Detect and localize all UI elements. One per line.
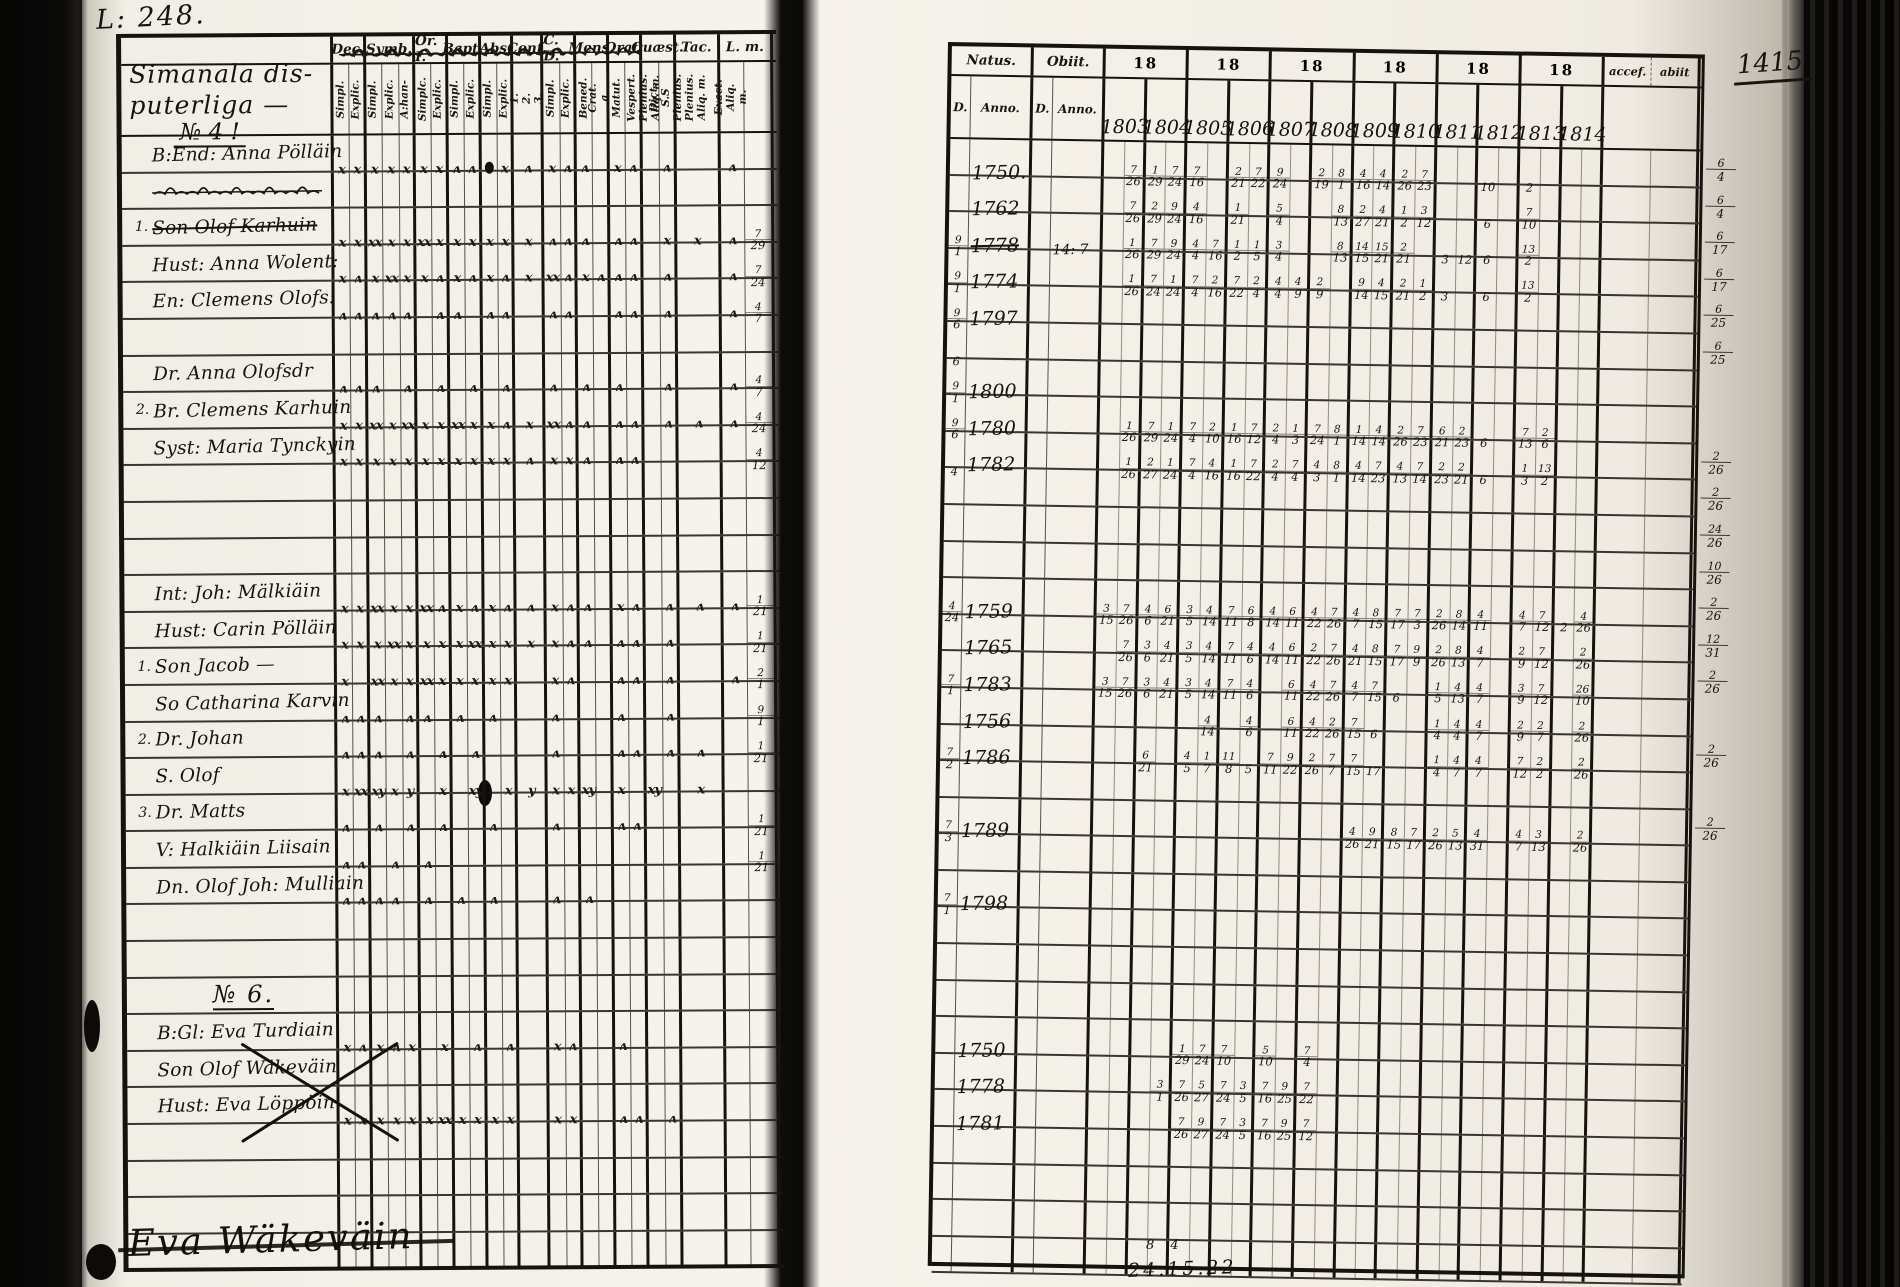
communion-date-cell: 724 (1213, 1058, 1234, 1093)
communion-date-cell (1487, 880, 1508, 915)
person-name-cell: 1.Son Jacob — (125, 648, 337, 684)
mark-cell (356, 1160, 373, 1195)
mark-cell (721, 316, 745, 351)
mark-cell (749, 865, 778, 900)
mark-cell: x (514, 208, 544, 243)
margin-annotation: 2426 (1700, 524, 1730, 549)
mark-cell (416, 281, 433, 316)
accessit-abiit-cell (1641, 773, 1690, 808)
mark-cell (566, 1049, 583, 1084)
mark-cell (611, 317, 628, 352)
mark-cell (645, 573, 662, 608)
register-row: En: Clemens Olofs:ʌʌʌʌʌʌʌʌʌʌʌʌʌʌʌ47 (123, 279, 778, 320)
communion-date-cell (1317, 1097, 1338, 1132)
mark-cell (642, 134, 659, 169)
communion-date-cell (1285, 511, 1306, 546)
ink-blot (86, 1244, 116, 1280)
mark-cell: ʌ (563, 573, 580, 608)
mark-cell (521, 1232, 551, 1267)
register-row: V: Halkiäin Liisainʌʌʌʌ121 (126, 828, 781, 869)
communion-date-cell (1139, 545, 1160, 580)
mark-cell: ʌ (663, 719, 680, 754)
mark-cell (563, 537, 580, 572)
mark-cell (580, 720, 597, 755)
communion-date-cell (1369, 475, 1390, 510)
communion-date-cell (1134, 801, 1155, 836)
communion-date-cell (1104, 142, 1125, 177)
mark-cell (631, 939, 648, 974)
mark-cell (400, 318, 417, 353)
communion-date-cell: 815 (1384, 805, 1405, 840)
communion-date-cell (1540, 149, 1561, 184)
accessit-abiit-cell (1648, 334, 1697, 369)
communion-date-cell: 12 (1227, 217, 1248, 252)
obiit-day-cell (1021, 799, 1042, 834)
mark-cell: ʌ (720, 133, 744, 168)
mark-cell (502, 830, 519, 865)
mark-cell (614, 939, 631, 974)
mark-cell (676, 133, 720, 168)
mark-cell: ʌ (484, 684, 501, 719)
communion-date-cell (1498, 221, 1519, 256)
communion-date-cell: 421 (1158, 655, 1179, 690)
mark-cell: ʌ (629, 573, 646, 608)
mark-cell: ʌ (577, 207, 594, 242)
communion-date-cell: 421 (1158, 618, 1179, 653)
mark-cell (681, 938, 725, 973)
mark-cell (438, 1050, 455, 1085)
rotated-sub-label: Plenius. Aliq. m. (685, 73, 709, 121)
mark-cell: 121 (747, 609, 776, 644)
communion-date-cell (1267, 327, 1288, 362)
row-number: 2. (125, 732, 151, 748)
communion-date-cell: 74 (1297, 1023, 1318, 1058)
mark-cell (678, 426, 722, 461)
mark-cell (383, 172, 400, 207)
communion-date-cell: 726 (1116, 654, 1137, 689)
obiit-day-cell (1014, 1201, 1035, 1236)
communion-date-cell: 416 (1203, 436, 1224, 471)
mark-cell: x (449, 208, 466, 243)
communion-date-cell (1527, 954, 1548, 989)
communion-date-cell (1556, 442, 1577, 477)
mark-cell: ʌ (611, 390, 628, 425)
communion-date-cell (1362, 878, 1383, 913)
natus-year-cell (953, 1127, 1016, 1163)
mark-cell: xx (354, 758, 371, 793)
mark-cell (643, 243, 660, 278)
mark-cell (723, 609, 747, 644)
communion-date-cell (1481, 1246, 1502, 1281)
communion-date-cell (1454, 330, 1475, 365)
communion-date-cell (1247, 290, 1268, 325)
communion-date-cell (1235, 986, 1256, 1021)
communion-date-cell (1379, 1134, 1400, 1169)
communion-date-cell (1548, 954, 1569, 989)
sub-column-header: Matut. (609, 63, 626, 132)
mark-cell (595, 463, 612, 498)
communion-date-cell (1133, 911, 1154, 946)
natus-day-cell (943, 542, 964, 577)
communion-date-cell: 47 (1469, 697, 1490, 732)
mark-cell (401, 501, 418, 536)
mark-cell (583, 1195, 600, 1230)
mark-cell (599, 1122, 616, 1157)
row-number: 1. (125, 658, 151, 674)
communion-date-cell (1582, 150, 1603, 185)
accessit-abiit-cell (1644, 553, 1693, 588)
attendance-table-right-page: Natus.Obiit.181818181818accef.abiitD.Ann… (928, 42, 1705, 1278)
communion-date-cell: 6 (1476, 258, 1497, 293)
communion-date-cell (1202, 509, 1223, 544)
mark-cell (404, 940, 421, 975)
communion-date-cell: 724 (1307, 401, 1328, 436)
obiit-day-cell (1023, 653, 1044, 688)
register-row (122, 170, 777, 211)
mark-cell (593, 171, 610, 206)
sub-column-header: Explic. (382, 64, 399, 133)
person-name: So Catharina Karvin (155, 690, 350, 716)
communion-date-cell (1164, 289, 1185, 324)
mark-cell (469, 867, 486, 902)
communion-date-cell (1109, 1057, 1130, 1092)
communion-date-cell (1330, 292, 1351, 327)
mark-cell (725, 865, 749, 900)
communion-date-cell (1217, 839, 1238, 874)
mark-cell: ʌ (401, 355, 418, 390)
mark-cell: xy (370, 757, 387, 792)
mark-cell: ʌ (468, 720, 485, 755)
mark-cell (680, 682, 724, 717)
mark-cell (683, 1158, 727, 1193)
communion-date-cell (1197, 765, 1218, 800)
mark-cell: ʌ (629, 609, 646, 644)
communion-date-cell: 722 (1297, 1060, 1318, 1095)
mark-cell: ʌ (485, 793, 502, 828)
mark-cell (417, 318, 434, 353)
communion-date-cell: 413 (1449, 660, 1470, 695)
mark-cell (437, 940, 454, 975)
mark-cell (647, 902, 664, 937)
mark-cell (724, 682, 748, 717)
communion-date-cell (1377, 1244, 1398, 1279)
mark-cell (517, 647, 547, 682)
communion-date-cell (1155, 838, 1176, 873)
communion-date-cell (1567, 1028, 1588, 1063)
mark-cell (422, 1160, 439, 1195)
communion-date-cell (1108, 1166, 1129, 1201)
communion-date-cell (1087, 1166, 1108, 1201)
communion-date-cell: 43 (1307, 438, 1328, 473)
mark-cell (750, 1084, 779, 1119)
communion-date-cell (1252, 1242, 1273, 1277)
mark-cell (386, 721, 403, 756)
mark-cell (519, 1013, 549, 1048)
mark-cell: x (450, 428, 467, 463)
communion-date-cell: 3 (1435, 220, 1456, 255)
mark-cell (565, 866, 582, 901)
mark-cell: x (334, 245, 351, 280)
communion-date-cell (1294, 1206, 1315, 1241)
mark-cell: ʌ (335, 355, 352, 390)
communion-date-cell (1277, 986, 1298, 1021)
communion-date-cell: 6 (1477, 221, 1498, 256)
communion-date-cell: 1521 (1373, 219, 1394, 254)
communion-date-cell: 716 (1255, 1059, 1276, 1094)
communion-date-cell: 210 (1204, 399, 1225, 434)
accessit-abiit-cell (1651, 151, 1700, 186)
obiit-day-cell (1017, 1019, 1038, 1054)
communion-date-cell: 226 (1426, 806, 1447, 841)
mark-cell (504, 1159, 521, 1194)
mark-cell (564, 720, 581, 755)
mark-cell: ʌ (629, 719, 646, 754)
communion-date-cell (1495, 368, 1516, 403)
communion-date-cell: 116 (1224, 400, 1245, 435)
communion-date-cell (1549, 881, 1570, 916)
mark-cell: xx (545, 244, 562, 279)
communion-date-cell (1401, 1025, 1422, 1060)
communion-date-cell: 2610 (1574, 662, 1595, 697)
communion-date-cell: 813 (1331, 219, 1352, 254)
communion-date-cell (1455, 294, 1476, 329)
mark-cell (594, 354, 611, 389)
mark-cell (565, 939, 582, 974)
communion-date-cell (1499, 148, 1520, 183)
communion-date-cell (1486, 953, 1507, 988)
communion-date-cell (1149, 1204, 1170, 1239)
communion-date-cell: 81 (1333, 145, 1354, 180)
mark-cell (563, 500, 580, 535)
mark-cell (677, 243, 721, 278)
mark-cell (368, 318, 385, 353)
communion-date-cell (1095, 690, 1116, 725)
sub-column-header: 1. 2. 3. (513, 63, 543, 132)
mark-cell: x (437, 1013, 454, 1048)
mark-cell (727, 1194, 751, 1229)
person-name-cell (124, 465, 336, 501)
mark-cell (401, 465, 418, 500)
communion-date-cell (1237, 912, 1258, 947)
communion-date-cell (1268, 291, 1289, 326)
mark-cell (385, 465, 402, 500)
mark-cell (517, 720, 547, 755)
communion-date-cell (1102, 251, 1123, 286)
column-group-header: L. m. (720, 34, 773, 60)
obiit-day-cell (1026, 470, 1047, 505)
accessit-abiit-cell (1633, 1248, 1682, 1283)
communion-date-cell (1389, 512, 1410, 547)
natus-year-cell (957, 908, 1020, 944)
communion-date-cell: 44 (1268, 254, 1289, 289)
communion-date-cell (1218, 802, 1239, 837)
communion-date-cell (1451, 513, 1472, 548)
mark-cell: ʌ (630, 792, 647, 827)
communion-date-cell (1464, 989, 1485, 1024)
mark-cell (471, 1123, 488, 1158)
mark-cell: x (372, 1014, 389, 1049)
mark-cell (681, 829, 725, 864)
register-row: 2.Br. Clemens Karhuinxxxxxxxxxxxxxʌxxxʌʌ… (123, 389, 778, 430)
sub-column-header: Simpl. (543, 63, 560, 132)
natus-year-cell: 1789 (959, 798, 1022, 834)
communion-date-cell (1556, 478, 1577, 513)
mark-cell (724, 792, 748, 827)
mark-cell (519, 903, 549, 938)
communion-date-cell (1481, 1209, 1502, 1244)
communion-date-cell: 81 (1328, 402, 1349, 437)
communion-date-cell (1382, 951, 1403, 986)
mark-cell: ʌ (594, 244, 611, 279)
mark-cell: 91 (748, 682, 777, 717)
mark-cell (453, 940, 470, 975)
person-name: En: Clemens Olofs: (152, 287, 335, 312)
mark-cell: ʌ (665, 1085, 682, 1120)
mark-cell (502, 903, 519, 938)
communion-date-cell (1100, 398, 1121, 433)
communion-date-cell (1472, 514, 1493, 549)
year-group-header: 18 (1355, 53, 1439, 82)
communion-date-cell: 723 (1369, 439, 1390, 474)
communion-date-cell (1503, 1173, 1524, 1208)
communion-date-cell: 726 (1125, 142, 1146, 177)
communion-date-cell (1498, 185, 1519, 220)
communion-date-cell (1457, 184, 1478, 219)
communion-date-cell: 47 (1470, 623, 1491, 658)
communion-date-cell (1160, 545, 1181, 580)
mark-cell (418, 464, 435, 499)
communion-date-cell (1113, 837, 1134, 872)
natus-day-cell: 73 (939, 798, 960, 833)
mark-cell (471, 1159, 488, 1194)
mark-cell: x (546, 427, 563, 462)
mark-cell: ʌ (465, 135, 482, 170)
mark-cell: xx (370, 648, 387, 683)
obiit-day-cell (1024, 616, 1045, 651)
person-name: Dr. Johan (155, 728, 244, 751)
communion-date-cell (1103, 178, 1124, 213)
communion-date-cell (1413, 330, 1434, 365)
communion-date-cell (1131, 1020, 1152, 1055)
mark-cell (633, 1232, 650, 1267)
natus-day-cell: 91 (949, 212, 970, 247)
mark-cell: ʌ (368, 355, 385, 390)
communion-date-cell: 722 (1245, 437, 1266, 472)
mark-cell (451, 537, 468, 572)
communion-date-cell: 621 (1136, 728, 1157, 763)
mark-cell: ʌ (722, 353, 746, 388)
mark-cell (643, 207, 660, 242)
mark-cell (546, 500, 563, 535)
mark-cell (583, 1122, 600, 1157)
mark-cell: x (435, 647, 452, 682)
communion-date-cell: 813 (1449, 623, 1470, 658)
obiit-day-cell (1015, 1165, 1036, 1200)
mark-cell: x (352, 428, 369, 463)
mark-cell (725, 938, 749, 973)
communion-date-cell: 924 (1270, 144, 1291, 179)
year-group-header: 18 (1189, 50, 1273, 79)
communion-date-cell (1287, 364, 1308, 399)
communion-date-cell (1143, 289, 1164, 324)
mark-cell (470, 1050, 487, 1085)
mark-cell (599, 1159, 616, 1194)
mark-cell: x (454, 1086, 471, 1121)
mark-cell (385, 501, 402, 536)
communion-date-cell (1140, 472, 1161, 507)
communion-date-cell (1133, 874, 1154, 909)
mark-cell: x (335, 428, 352, 463)
mark-cell (599, 1049, 616, 1084)
mark-cell: ʌ (613, 719, 630, 754)
sub-column-header: Anno. (970, 76, 1033, 138)
mark-cell: x (402, 611, 419, 646)
communion-date-cell (1577, 442, 1598, 477)
mark-cell: x (547, 647, 564, 682)
communion-date-cell (1483, 1099, 1504, 1134)
communion-date-cell: 712 (1532, 661, 1553, 696)
communion-date-cell (1178, 692, 1199, 727)
communion-date-cell: 714 (1411, 439, 1432, 474)
register-row: Hust: Carin Pölläinxxxxxxxxxxxxxxxʌʌʌʌʌ1… (125, 609, 780, 650)
communion-date-cell (1388, 549, 1409, 584)
communion-date-cell (1093, 764, 1114, 799)
mark-cell (420, 794, 437, 829)
communion-date-cell (1119, 471, 1140, 506)
mark-cell (500, 464, 517, 499)
communion-date-cell (1577, 479, 1598, 514)
communion-date-cell (1257, 913, 1278, 948)
mark-cell: ʌ (354, 721, 371, 756)
communion-date-cell (1246, 364, 1267, 399)
obiit-day-cell (1018, 982, 1039, 1017)
communion-date-cell (1402, 952, 1423, 987)
mark-cell: x (612, 573, 629, 608)
communion-date-cell (1218, 766, 1239, 801)
mark-cell (546, 464, 563, 499)
mark-cell (598, 902, 615, 937)
mark-cell (419, 757, 436, 792)
mark-cell (518, 793, 548, 828)
communion-date-cell (1339, 1024, 1360, 1059)
mark-cell: ʌ (610, 244, 627, 279)
mark-cell (369, 501, 386, 536)
mark-cell: ʌ (403, 794, 420, 829)
mark-cell (402, 538, 419, 573)
mark-cell: x (564, 756, 581, 791)
communion-date-cell (1464, 1026, 1485, 1061)
natus-year-cell: 1765 (962, 615, 1025, 651)
mark-cell (681, 975, 725, 1010)
obiit-year-cell (1052, 141, 1105, 176)
obiit-day-cell (1019, 909, 1040, 944)
mark-cell (682, 1085, 726, 1120)
accessit-abiit-cell (1636, 1065, 1685, 1100)
communion-date-cell (1496, 331, 1517, 366)
communion-date-cell (1281, 767, 1302, 802)
communion-date-cell (1517, 295, 1538, 330)
mark-cell: x (451, 574, 468, 609)
mark-cell (664, 829, 681, 864)
communion-date-cell (1529, 844, 1550, 879)
mark-cell: x (352, 392, 369, 427)
communion-date-cell (1128, 1167, 1149, 1202)
scan-left-black-edge (0, 0, 88, 1287)
communion-date-cell: 914 (1352, 256, 1373, 291)
communion-date-cell: 6 (1365, 695, 1386, 730)
communion-date-cell: 513 (1446, 806, 1467, 841)
page-folio-number-left: L: 248. (95, 0, 206, 36)
